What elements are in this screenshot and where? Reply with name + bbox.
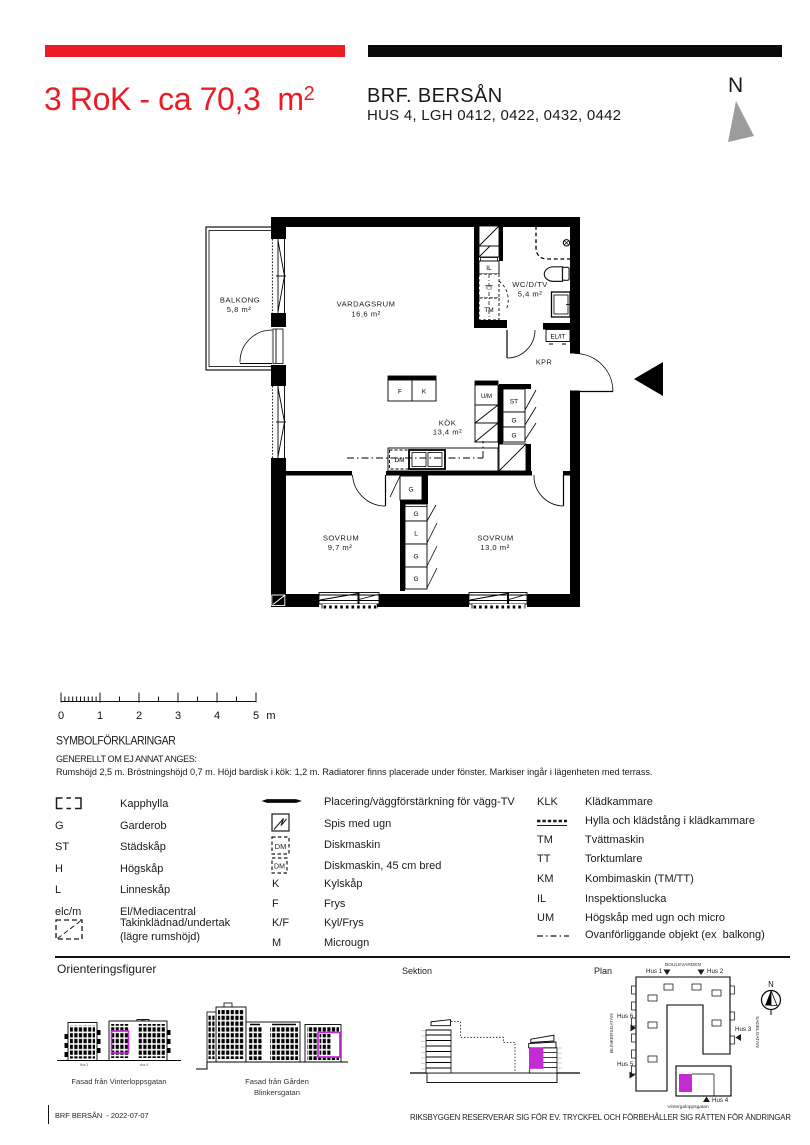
svg-text:1: 1 xyxy=(97,710,103,722)
svg-text:K: K xyxy=(422,389,427,396)
svg-text:DM: DM xyxy=(275,842,287,851)
svg-text:Hus 4: Hus 4 xyxy=(712,1097,729,1104)
svg-text:N: N xyxy=(768,980,774,989)
svg-text:SOVRUM: SOVRUM xyxy=(323,534,359,543)
svg-text:13,0 m²: 13,0 m² xyxy=(480,543,509,552)
svg-text:G: G xyxy=(408,487,413,494)
svg-text:U/M: U/M xyxy=(481,394,492,400)
svg-text:G: G xyxy=(413,511,418,518)
svg-text:Hus 2: Hus 2 xyxy=(707,968,724,975)
svg-text:G: G xyxy=(413,576,418,583)
svg-text:G: G xyxy=(511,433,516,440)
svg-text:9,7 m²: 9,7 m² xyxy=(328,543,353,552)
svg-text:0: 0 xyxy=(58,710,64,722)
svg-text:BLINKERSGATAN: BLINKERSGATAN xyxy=(609,1013,615,1053)
svg-text:KÖK: KÖK xyxy=(439,418,457,427)
svg-text:SADELGATAN: SADELGATAN xyxy=(754,1016,760,1048)
svg-text:Hus 4: Hus 4 xyxy=(140,1063,149,1067)
svg-text:3: 3 xyxy=(175,710,181,722)
svg-text:KPR: KPR xyxy=(536,357,552,366)
svg-text:16,6 m²: 16,6 m² xyxy=(351,309,380,318)
svg-text:Fasad från Gården: Fasad från Gården xyxy=(245,1077,309,1086)
svg-text:5: 5 xyxy=(253,710,259,722)
svg-text:G: G xyxy=(511,418,516,425)
svg-text:Hus 6: Hus 6 xyxy=(617,1013,634,1020)
svg-text:m: m xyxy=(266,710,275,722)
svg-text:Hus 3: Hus 3 xyxy=(735,1026,752,1033)
svg-text:SOVRUM: SOVRUM xyxy=(477,534,513,543)
svg-text:Vintergaloppsgatan: Vintergaloppsgatan xyxy=(667,1104,709,1110)
svg-text:BALKONG: BALKONG xyxy=(220,295,260,304)
svg-text:G: G xyxy=(413,554,418,561)
svg-text:F: F xyxy=(398,389,402,396)
svg-text:Hus 5: Hus 5 xyxy=(617,1061,634,1068)
svg-text:13,4 m²: 13,4 m² xyxy=(433,428,462,437)
svg-text:DM: DM xyxy=(274,864,285,871)
svg-text:4: 4 xyxy=(214,710,220,722)
svg-text:WC/D/TV: WC/D/TV xyxy=(512,280,548,289)
svg-text:5,4 m²: 5,4 m² xyxy=(518,289,543,298)
svg-text:BOULEVARDEN: BOULEVARDEN xyxy=(665,962,701,968)
svg-text:Hus 3: Hus 3 xyxy=(80,1063,89,1067)
svg-text:5,8 m²: 5,8 m² xyxy=(227,305,252,314)
svg-text:2: 2 xyxy=(136,710,142,722)
svg-text:L: L xyxy=(414,531,418,538)
svg-text:Blinkersgatan: Blinkersgatan xyxy=(254,1088,300,1097)
svg-text:ST: ST xyxy=(510,399,518,406)
svg-text:EL/IT: EL/IT xyxy=(550,334,565,341)
svg-text:Hus 1: Hus 1 xyxy=(646,968,663,975)
svg-text:Fasad från Vinterloppsgatan: Fasad från Vinterloppsgatan xyxy=(71,1077,166,1086)
svg-text:IL: IL xyxy=(486,265,492,272)
svg-text:VARDAGSRUM: VARDAGSRUM xyxy=(337,300,396,309)
